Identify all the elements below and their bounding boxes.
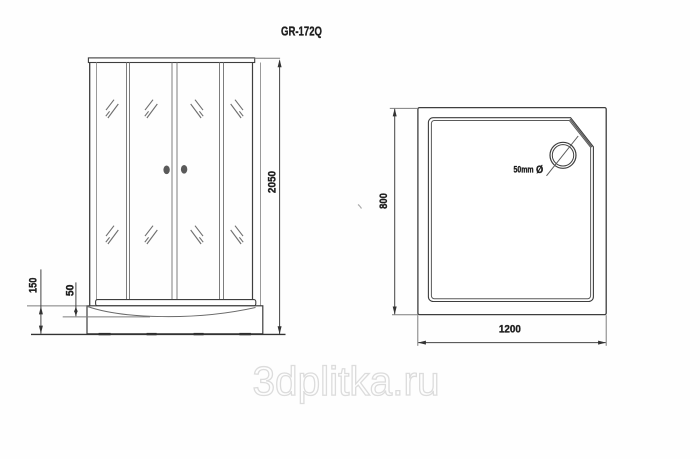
svg-text:1200: 1200 bbox=[499, 324, 521, 336]
svg-text:50: 50 bbox=[65, 285, 77, 297]
svg-text:Ø: Ø bbox=[536, 164, 543, 176]
svg-text:GR-172Q: GR-172Q bbox=[281, 24, 322, 39]
svg-text:800: 800 bbox=[378, 193, 390, 209]
svg-text:50mm: 50mm bbox=[514, 165, 534, 175]
svg-text:2050: 2050 bbox=[267, 171, 279, 193]
svg-text:150: 150 bbox=[28, 278, 40, 294]
svg-text:3dplitka.ru: 3dplitka.ru bbox=[253, 358, 440, 404]
